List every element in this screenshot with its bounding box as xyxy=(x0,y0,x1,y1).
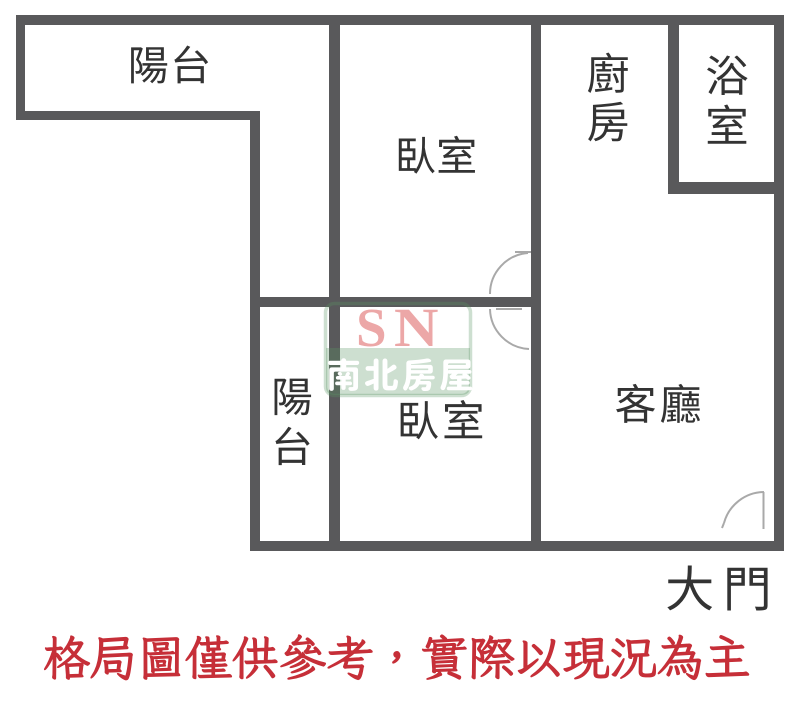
svg-text:S: S xyxy=(356,297,387,358)
svg-text:N: N xyxy=(394,297,438,358)
